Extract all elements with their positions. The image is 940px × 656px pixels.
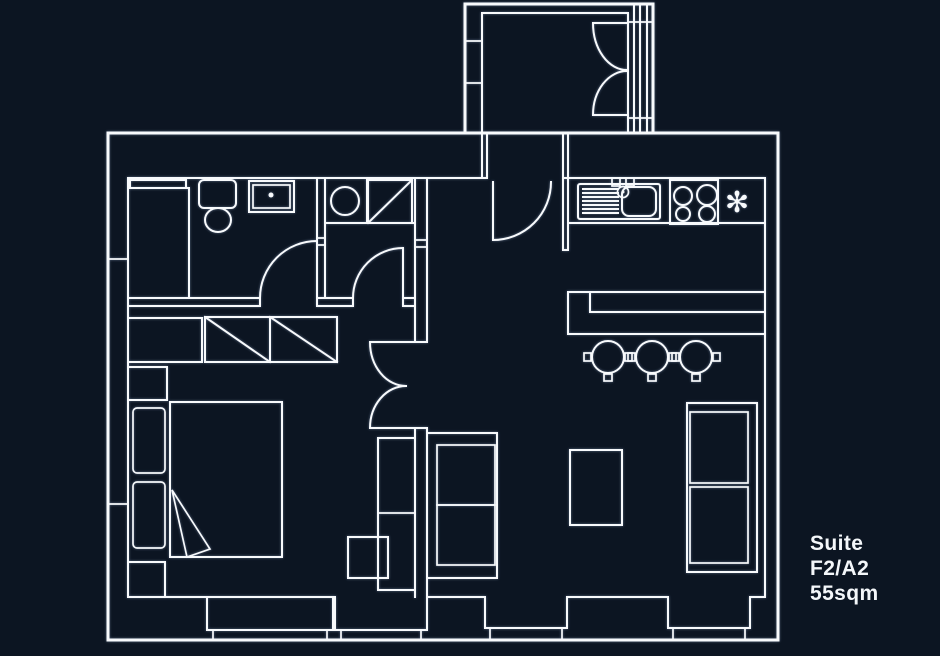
bathtub-icon bbox=[128, 180, 189, 298]
bar-stool-icon bbox=[672, 341, 720, 381]
pillow bbox=[133, 408, 165, 473]
wc-fixtures bbox=[325, 178, 415, 223]
chair-icon bbox=[348, 537, 388, 578]
sofa-icon bbox=[687, 403, 757, 572]
suite-label-line3: 55sqm bbox=[810, 581, 879, 606]
bar-counter bbox=[568, 292, 765, 334]
suite-label-line2: F2/A2 bbox=[810, 556, 879, 581]
window bbox=[485, 597, 567, 638]
suite-label-line1: Suite bbox=[810, 531, 879, 556]
window bbox=[335, 597, 427, 638]
pillow bbox=[133, 482, 165, 548]
entry-door bbox=[493, 182, 551, 240]
duvet bbox=[170, 402, 282, 557]
extractor-fan-icon: ✻ bbox=[725, 185, 749, 219]
bar-stool-icon bbox=[628, 341, 676, 381]
bar-stools bbox=[584, 341, 720, 381]
floor-plan-stage: ✻ bbox=[0, 0, 940, 656]
wc-door bbox=[353, 248, 403, 298]
sofa-icon bbox=[427, 433, 497, 578]
desk-icon bbox=[378, 438, 415, 590]
stove-icon bbox=[670, 180, 718, 224]
window bbox=[668, 597, 750, 638]
window bbox=[207, 597, 333, 638]
coffee-table-icon bbox=[570, 450, 622, 525]
cabinet-icon bbox=[128, 318, 202, 362]
bedroom-double-door bbox=[370, 342, 427, 428]
nightstand bbox=[128, 562, 165, 597]
kitchen-sink-icon bbox=[578, 178, 660, 219]
nightstand bbox=[128, 367, 167, 400]
outer-walls bbox=[108, 4, 778, 640]
wc-basin-icon bbox=[331, 187, 359, 215]
bar-stool-icon bbox=[584, 341, 632, 381]
bathroom-door bbox=[260, 241, 317, 298]
bed-icon bbox=[128, 367, 282, 597]
floor-plan-canvas: ✻ bbox=[0, 0, 940, 656]
wardrobe-icon bbox=[205, 317, 337, 362]
boiler-icon bbox=[368, 180, 412, 223]
washbasin-icon bbox=[249, 181, 294, 212]
toilet-icon bbox=[199, 180, 236, 232]
suite-label: Suite F2/A2 55sqm bbox=[810, 531, 879, 606]
blanket-fold bbox=[172, 490, 210, 557]
vestibule-double-door bbox=[593, 23, 628, 115]
